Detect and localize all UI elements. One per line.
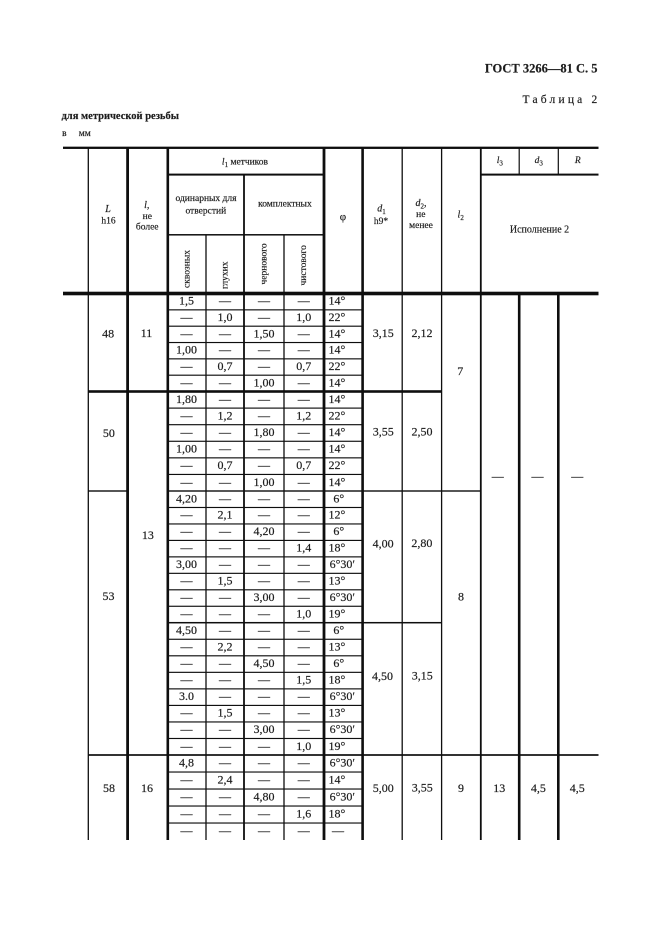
svg-text:—: — <box>297 294 311 308</box>
svg-text:—: — <box>257 673 271 687</box>
svg-text:14°: 14° <box>328 294 345 308</box>
svg-text:—: — <box>297 722 311 736</box>
svg-text:1,50: 1,50 <box>254 326 275 340</box>
svg-text:4,50: 4,50 <box>254 656 275 670</box>
svg-text:—: — <box>257 491 271 505</box>
svg-text:0,7: 0,7 <box>218 458 233 472</box>
svg-text:2,4: 2,4 <box>218 773 233 787</box>
svg-text:—: — <box>531 469 545 483</box>
svg-text:—: — <box>297 640 311 654</box>
svg-text:—: — <box>257 739 271 753</box>
svg-text:—: — <box>297 756 311 770</box>
svg-text:—: — <box>180 375 194 389</box>
svg-text:3,15: 3,15 <box>373 326 394 340</box>
svg-text:—: — <box>297 773 311 787</box>
svg-text:14°: 14° <box>328 326 345 340</box>
svg-text:9: 9 <box>458 781 464 795</box>
svg-text:3,00: 3,00 <box>176 557 197 571</box>
svg-text:—: — <box>297 375 311 389</box>
svg-text:6°30′: 6°30′ <box>330 790 356 804</box>
svg-text:—: — <box>257 359 271 373</box>
svg-text:1,6: 1,6 <box>296 807 311 821</box>
svg-text:в: в <box>62 129 67 139</box>
svg-text:13°: 13° <box>328 640 345 654</box>
svg-text:3,15: 3,15 <box>412 669 433 683</box>
svg-text:2,80: 2,80 <box>411 536 432 550</box>
svg-text:комплектных: комплектных <box>258 200 312 210</box>
svg-text:22°: 22° <box>328 359 345 373</box>
svg-text:отверстий: отверстий <box>185 205 226 216</box>
svg-text:—: — <box>297 689 311 703</box>
svg-text:0,7: 0,7 <box>218 359 233 373</box>
svg-text:22°: 22° <box>328 408 345 422</box>
svg-text:19°: 19° <box>328 739 345 753</box>
svg-text:—: — <box>180 425 194 439</box>
svg-text:14°: 14° <box>328 425 345 439</box>
svg-text:2,12: 2,12 <box>412 326 433 340</box>
svg-text:6°30′: 6°30′ <box>330 722 356 736</box>
svg-text:7: 7 <box>457 364 463 378</box>
svg-text:—: — <box>297 475 311 489</box>
svg-text:0,7: 0,7 <box>296 458 311 472</box>
svg-text:—: — <box>257 824 271 838</box>
svg-text:—: — <box>297 557 311 571</box>
svg-text:6°30′: 6°30′ <box>330 756 356 770</box>
svg-text:не: не <box>143 212 152 222</box>
svg-text:1,0: 1,0 <box>296 607 311 621</box>
svg-text:—: — <box>180 739 194 753</box>
svg-text:—: — <box>257 310 271 324</box>
svg-text:—: — <box>180 310 194 324</box>
svg-text:13°: 13° <box>328 706 345 720</box>
svg-text:—: — <box>218 524 232 538</box>
svg-text:—: — <box>297 706 311 720</box>
svg-text:глухих: глухих <box>221 261 231 289</box>
svg-text:одинарных для: одинарных для <box>176 194 238 204</box>
svg-text:R: R <box>574 156 581 166</box>
svg-text:—: — <box>180 408 194 422</box>
svg-text:—: — <box>180 590 194 604</box>
svg-text:—: — <box>180 574 194 588</box>
svg-text:6°30′: 6°30′ <box>330 689 356 703</box>
svg-text:14°: 14° <box>328 442 345 456</box>
svg-text:1,5: 1,5 <box>218 574 233 588</box>
svg-text:ГОСТ 3266—81 С. 5: ГОСТ 3266—81 С. 5 <box>485 61 598 75</box>
svg-text:—: — <box>257 706 271 720</box>
svg-text:3,55: 3,55 <box>412 781 433 795</box>
svg-text:14°: 14° <box>328 773 345 787</box>
svg-text:L: L <box>104 204 111 215</box>
svg-text:мм: мм <box>79 129 91 139</box>
svg-text:—: — <box>180 673 194 687</box>
svg-text:—: — <box>180 359 194 373</box>
svg-text:—: — <box>180 458 194 472</box>
svg-text:1,0: 1,0 <box>296 739 311 753</box>
svg-text:—: — <box>180 326 194 340</box>
svg-text:—: — <box>218 475 232 489</box>
svg-text:—: — <box>218 824 232 838</box>
svg-text:—: — <box>218 294 232 308</box>
svg-text:1,5: 1,5 <box>296 673 311 687</box>
svg-text:не: не <box>416 210 425 220</box>
svg-text:—: — <box>218 722 232 736</box>
svg-text:18°: 18° <box>328 673 345 687</box>
svg-text:—: — <box>257 574 271 588</box>
svg-text:12°: 12° <box>328 508 345 522</box>
svg-text:—: — <box>218 689 232 703</box>
svg-text:1,00: 1,00 <box>176 442 197 456</box>
svg-text:14°: 14° <box>328 343 345 357</box>
svg-text:1,2: 1,2 <box>296 408 311 422</box>
svg-text:—: — <box>297 392 311 406</box>
svg-text:—: — <box>297 524 311 538</box>
svg-text:—: — <box>180 807 194 821</box>
svg-text:чистового: чистового <box>299 245 309 286</box>
svg-text:22°: 22° <box>328 310 345 324</box>
svg-text:Таблица 2: Таблица 2 <box>523 94 601 106</box>
svg-text:2,1: 2,1 <box>218 508 233 522</box>
svg-text:14°: 14° <box>328 392 345 406</box>
svg-text:11: 11 <box>141 326 153 340</box>
svg-text:—: — <box>297 343 311 357</box>
svg-text:4,50: 4,50 <box>372 669 393 683</box>
svg-text:Исполнение 2: Исполнение 2 <box>510 224 569 235</box>
svg-text:1,5: 1,5 <box>179 294 194 308</box>
svg-text:—: — <box>257 541 271 555</box>
svg-text:14°: 14° <box>328 375 345 389</box>
svg-text:13°: 13° <box>328 574 345 588</box>
svg-text:сквозных: сквозных <box>183 250 193 288</box>
svg-text:—: — <box>491 469 505 483</box>
svg-text:—: — <box>297 623 311 637</box>
svg-text:13: 13 <box>142 528 154 542</box>
svg-text:—: — <box>218 790 232 804</box>
svg-text:для метрической резьбы: для метрической резьбы <box>62 111 179 122</box>
svg-text:6°30′: 6°30′ <box>330 590 356 604</box>
svg-text:1,00: 1,00 <box>254 475 275 489</box>
svg-text:4,5: 4,5 <box>570 781 585 795</box>
svg-text:6°: 6° <box>333 656 344 670</box>
svg-text:—: — <box>257 640 271 654</box>
svg-text:3,00: 3,00 <box>254 722 275 736</box>
svg-text:50: 50 <box>103 426 115 440</box>
svg-text:—: — <box>218 590 232 604</box>
svg-text:1,00: 1,00 <box>176 343 197 357</box>
svg-text:19°: 19° <box>328 607 345 621</box>
svg-text:—: — <box>257 294 271 308</box>
svg-text:58: 58 <box>103 781 115 795</box>
svg-text:48: 48 <box>102 326 114 340</box>
svg-text:1,2: 1,2 <box>218 408 233 422</box>
svg-text:—: — <box>218 557 232 571</box>
svg-text:8: 8 <box>458 590 464 604</box>
svg-text:—: — <box>257 458 271 472</box>
svg-text:—: — <box>180 706 194 720</box>
svg-text:1,80: 1,80 <box>254 425 275 439</box>
svg-text:2,2: 2,2 <box>218 640 233 654</box>
svg-text:—: — <box>218 656 232 670</box>
svg-text:—: — <box>297 425 311 439</box>
svg-text:—: — <box>180 508 194 522</box>
svg-text:1,5: 1,5 <box>218 706 233 720</box>
svg-text:—: — <box>297 491 311 505</box>
svg-text:6°: 6° <box>333 524 344 538</box>
svg-text:—: — <box>257 756 271 770</box>
svg-text:менее: менее <box>409 221 433 231</box>
svg-text:4,20: 4,20 <box>176 491 197 505</box>
svg-text:—: — <box>218 326 232 340</box>
svg-text:h9*: h9* <box>374 217 389 227</box>
svg-text:φ: φ <box>340 211 346 223</box>
svg-text:4,20: 4,20 <box>254 524 275 538</box>
svg-text:—: — <box>257 557 271 571</box>
svg-text:4,5: 4,5 <box>531 781 546 795</box>
svg-text:—: — <box>257 807 271 821</box>
svg-text:6°30′: 6°30′ <box>330 557 356 571</box>
svg-text:—: — <box>218 607 232 621</box>
svg-text:1,80: 1,80 <box>176 392 197 406</box>
svg-text:—: — <box>218 541 232 555</box>
svg-text:14°: 14° <box>328 475 345 489</box>
svg-text:3,55: 3,55 <box>373 425 394 439</box>
svg-text:—: — <box>257 408 271 422</box>
svg-text:3,00: 3,00 <box>254 590 275 604</box>
svg-text:—: — <box>257 623 271 637</box>
svg-text:4,50: 4,50 <box>176 623 197 637</box>
svg-text:—: — <box>297 442 311 456</box>
svg-text:—: — <box>257 442 271 456</box>
svg-text:—: — <box>297 508 311 522</box>
svg-text:—: — <box>257 508 271 522</box>
svg-text:6°: 6° <box>333 623 344 637</box>
svg-text:4,00: 4,00 <box>373 536 394 550</box>
svg-text:—: — <box>180 790 194 804</box>
svg-text:4,8: 4,8 <box>179 756 194 770</box>
svg-text:более: более <box>136 222 159 233</box>
svg-text:—: — <box>218 756 232 770</box>
svg-text:—: — <box>218 739 232 753</box>
svg-text:—: — <box>180 656 194 670</box>
svg-text:16: 16 <box>141 781 153 795</box>
svg-text:—: — <box>257 773 271 787</box>
svg-text:l1 метчиков: l1 метчиков <box>222 158 269 169</box>
svg-text:—: — <box>297 656 311 670</box>
svg-text:4,80: 4,80 <box>254 790 275 804</box>
svg-text:—: — <box>570 469 584 483</box>
svg-text:1,4: 1,4 <box>296 541 311 555</box>
svg-text:1,0: 1,0 <box>218 310 233 324</box>
svg-text:—: — <box>257 343 271 357</box>
svg-text:—: — <box>297 574 311 588</box>
svg-text:—: — <box>218 623 232 637</box>
svg-text:—: — <box>218 375 232 389</box>
svg-text:—: — <box>257 392 271 406</box>
svg-text:6°: 6° <box>333 491 344 505</box>
svg-text:—: — <box>180 475 194 489</box>
svg-text:53: 53 <box>103 589 115 603</box>
svg-text:—: — <box>218 343 232 357</box>
svg-text:—: — <box>297 326 311 340</box>
svg-text:—: — <box>180 541 194 555</box>
svg-text:1,0: 1,0 <box>296 310 311 324</box>
svg-text:—: — <box>180 607 194 621</box>
svg-text:—: — <box>218 425 232 439</box>
svg-text:18°: 18° <box>328 807 345 821</box>
svg-text:—: — <box>257 607 271 621</box>
svg-text:2,50: 2,50 <box>412 424 433 438</box>
svg-text:13: 13 <box>493 781 505 795</box>
svg-text:—: — <box>218 491 232 505</box>
svg-text:—: — <box>218 673 232 687</box>
svg-text:18°: 18° <box>328 541 345 555</box>
svg-text:—: — <box>297 590 311 604</box>
svg-text:—: — <box>218 442 232 456</box>
svg-text:—: — <box>180 773 194 787</box>
svg-text:—: — <box>218 807 232 821</box>
svg-text:—: — <box>297 790 311 804</box>
svg-text:h16: h16 <box>101 217 116 227</box>
svg-text:l,: l, <box>144 200 149 211</box>
svg-text:5,00: 5,00 <box>373 781 394 795</box>
svg-text:—: — <box>331 824 345 838</box>
svg-text:22°: 22° <box>328 458 345 472</box>
svg-text:—: — <box>180 640 194 654</box>
svg-text:—: — <box>180 824 194 838</box>
svg-text:3.0: 3.0 <box>179 689 194 703</box>
svg-text:—: — <box>257 689 271 703</box>
svg-text:0,7: 0,7 <box>296 359 311 373</box>
svg-text:—: — <box>180 524 194 538</box>
svg-text:—: — <box>218 392 232 406</box>
svg-text:1,00: 1,00 <box>254 375 275 389</box>
svg-text:чернового: чернового <box>260 243 270 284</box>
svg-text:—: — <box>297 824 311 838</box>
svg-text:—: — <box>180 722 194 736</box>
